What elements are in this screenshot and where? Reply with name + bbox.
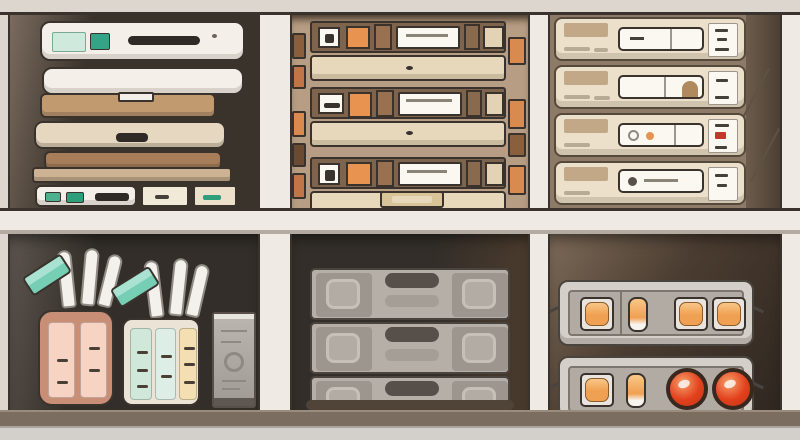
small-cream-box [380,191,444,208]
red-mark [715,132,726,139]
cream-holder [122,318,200,406]
mint-panel [155,328,176,400]
plate-mark [644,179,678,182]
dark-dot [628,177,637,186]
tower-base [214,398,254,406]
label-box [193,185,237,207]
plate-mark [630,37,644,40]
crate-base-shadow [306,400,514,410]
label-card [708,23,738,57]
tower-knob [224,352,244,372]
pink-panel [80,322,107,398]
brown-box [374,24,392,50]
dash-mark [161,355,172,358]
crate-handle [385,381,439,396]
panel-divider [620,292,622,334]
white-label-plate [396,26,460,49]
drawer-top-row [310,157,506,189]
shelf-top-frame [0,0,800,15]
card-dash [716,79,728,82]
crate-side-panel [316,327,372,371]
orange-box [346,26,370,49]
crate-side-panel [316,273,372,317]
scribble-line [406,99,452,102]
bottom-shelf-board [0,410,800,426]
tower-line [222,380,246,382]
drawer-face [310,55,506,81]
amber-window [580,373,614,407]
drawer-face [310,121,506,147]
white-media-device [40,21,245,61]
storage-drawer [554,161,746,205]
tower-line [221,330,247,332]
book-tab [118,92,154,102]
chip-dot [325,34,334,43]
storage-drawer [554,65,746,109]
case-panel [568,366,744,410]
case-latch [752,306,764,314]
teal-button [90,33,110,50]
side-wall-shadow [746,15,780,208]
cream-box [485,162,504,186]
green-button [66,192,84,203]
metal-case-bottom [558,356,754,410]
compartment-bottom-right [550,234,780,410]
dash-mark [89,347,100,350]
amber-pill-light [628,297,648,332]
card-dash [715,124,729,127]
label-card [708,167,738,201]
card-dash [715,96,729,99]
orange-box [346,162,372,186]
dash-mark [137,369,148,372]
holder1-contents [28,248,132,318]
storage-drawer [554,113,746,157]
wall-crease [750,128,780,182]
dash-mark [184,381,195,384]
chip-dot [325,170,335,181]
brown-box [376,90,394,117]
card-dash [715,48,729,51]
storage-shelves-illustration [0,0,800,440]
pink-panel [48,322,75,398]
crate-recess [462,279,496,309]
white-label-plate [398,162,462,186]
compartment-bottom-middle [292,234,528,410]
tan-corner-label [564,23,608,37]
tan-corner-label [564,119,608,133]
crate-handle [385,327,439,342]
face-dot [406,131,413,135]
side-box [508,133,526,157]
case-latch [550,306,560,314]
dash-mark [564,47,590,51]
compartment-top-right [550,15,780,208]
amber-glow [679,302,703,326]
crate-side-panel [452,327,508,371]
scribble-line [407,170,447,173]
indicator-dot [212,34,217,38]
handle-plate [618,27,704,51]
card-dash [715,29,728,32]
label-box [141,185,189,207]
crate-label [385,349,439,361]
label-card [708,71,738,105]
crate-side-panel [452,273,508,317]
red-knob [712,368,754,410]
dash-mark [564,191,590,195]
side-box [292,143,306,167]
dash-mark [594,48,608,52]
white-tray [42,67,244,95]
orange-box [348,92,372,118]
crate-recess [326,333,360,363]
cardboard-drawer-unit [310,87,506,147]
brown-box [464,24,480,50]
card-dash [715,146,727,149]
dash-mark [137,385,148,388]
crate-recess [462,333,496,363]
amber-glow [585,302,609,326]
drawer-top-row [310,21,506,53]
mint-panel [130,328,152,400]
dash-mark [564,143,590,147]
plate-divider [670,29,672,49]
handle-plate [618,75,704,99]
mint-mark [203,195,221,200]
dash-mark [161,375,172,378]
gray-crate [310,322,510,374]
handle-plate [618,169,704,193]
tan-corner-label [564,167,608,181]
case-latch [550,382,560,390]
white-label-plate [398,92,462,116]
amber-pill-light [626,373,646,408]
dash-mark [564,95,590,99]
cream-box [483,26,504,49]
face-dot [406,66,413,70]
dash-mark [57,381,68,384]
compartment-bottom-left [10,234,258,410]
dash-mark [57,359,68,362]
brown-box [466,160,482,187]
green-button [45,192,61,202]
teal-block-highlight [24,256,64,286]
floor [0,426,800,440]
side-box [292,173,306,199]
dash-mark [89,369,100,372]
orange-dot [646,132,654,140]
dash-mark [184,347,195,350]
card-dash [715,174,728,177]
middle-shelf-board [0,208,800,234]
tower-line [221,341,241,343]
tower-top-edge [214,314,254,319]
box-label [392,196,432,203]
mint-label [52,32,86,52]
salmon-holder [38,310,114,406]
dash-mark [184,363,195,366]
gray-control-tower [212,312,256,408]
case-panel [568,290,744,336]
side-box [508,165,526,195]
white-chip [318,27,340,48]
label-card [708,119,738,153]
tan-arch [682,81,698,97]
gray-circle [628,130,639,141]
crate-label [385,295,439,307]
brown-box [376,160,394,187]
amber-window [712,297,746,331]
dash-mark [137,351,148,354]
white-chip [318,93,344,114]
book-slot [116,133,148,142]
card-dash [717,184,727,187]
drawer-top-row [310,87,506,119]
side-box [292,33,306,59]
side-box [292,65,306,89]
card-dash [717,38,727,41]
brown-box [466,90,482,117]
compartment-top-middle [292,15,528,208]
cardboard-drawer-unit [310,21,506,81]
knob-highlight [677,378,691,390]
metal-case-top [558,280,754,346]
dash-mark [594,96,610,100]
crate-recess [326,279,360,309]
side-box [292,111,306,137]
white-chip [318,163,340,185]
device-slot [95,193,129,201]
handle-plate [618,123,704,147]
white-blade [184,263,211,319]
storage-drawer [554,17,746,61]
side-box [508,99,526,129]
dash-mark [155,195,169,199]
cream-box [485,92,504,116]
tan-panel [179,328,197,400]
amber-window [580,297,614,331]
red-knob [666,368,708,410]
plate-divider [664,77,666,97]
amber-glow [717,302,741,326]
small-white-device [35,185,137,207]
scribble-line [406,34,448,37]
amber-glow [585,378,609,402]
compartment-top-left [10,15,258,208]
amber-window [674,297,708,331]
tower-line [222,388,240,390]
book [40,93,216,118]
knob-highlight [723,378,737,390]
side-box [508,37,526,65]
chip-dash [324,103,340,108]
crate-handle [385,273,439,288]
book [32,167,232,183]
tan-corner-label [564,71,608,85]
plate-divider [674,125,676,145]
gray-crate [310,268,510,320]
disc-slot [128,36,200,45]
book [34,121,226,149]
